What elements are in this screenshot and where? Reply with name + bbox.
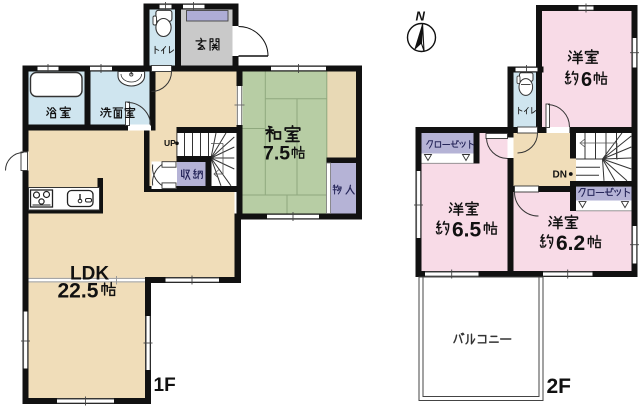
svg-text:N: N [416,9,426,24]
svg-text:2F: 2F [547,375,572,398]
svg-text:22.5: 22.5 [58,279,99,302]
svg-text:6: 6 [581,69,592,91]
svg-text:6.2: 6.2 [556,232,585,255]
svg-text:6.5: 6.5 [452,218,482,241]
svg-text:UP: UP [164,138,176,148]
svg-text:DN: DN [553,170,567,181]
svg-text:1F: 1F [154,375,176,396]
svg-text:7.5: 7.5 [263,143,290,165]
